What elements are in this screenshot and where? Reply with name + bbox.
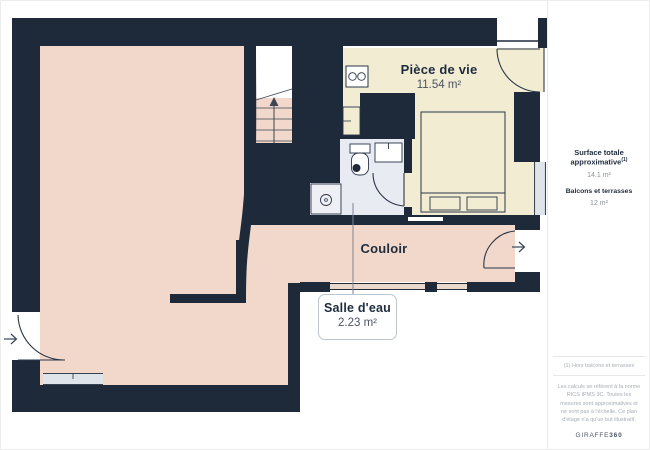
toilet-icon: [350, 144, 370, 175]
wall: [404, 139, 412, 173]
total-surface-value: 14.1 m²: [548, 172, 650, 179]
room-name: Couloir: [339, 241, 429, 256]
window: [330, 283, 425, 290]
wall: [300, 215, 515, 225]
window: [534, 162, 546, 215]
room-label-couloir: Couloir: [339, 241, 429, 256]
washing-machine-icon: [311, 184, 341, 214]
wall: [538, 18, 547, 48]
shower-icon: [375, 143, 402, 162]
balconies-label: Balcons et terrasses: [548, 188, 650, 195]
legal-block: (1) Hors balcons et terrasses Les calcul…: [548, 356, 650, 439]
area-summary: Surface totale approximative(1) 14.1 m² …: [548, 148, 650, 207]
bed-icon: [421, 112, 505, 212]
wall: [514, 92, 540, 162]
wall: [515, 272, 540, 292]
footnote-text: (1) Hors balcons et terrasses: [548, 357, 650, 375]
partition-wall: [170, 294, 246, 303]
total-surface-label: Surface totale approximative(1): [548, 148, 650, 167]
window: [43, 373, 103, 385]
balconies-value: 12 m²: [548, 200, 650, 207]
summary-sidebar: Surface totale approximative(1) 14.1 m² …: [547, 0, 650, 450]
room-area: 11.54 m²: [376, 79, 502, 91]
wall: [467, 282, 515, 292]
wall: [404, 207, 412, 215]
wall: [300, 282, 330, 292]
room-name: Salle d'eau: [319, 301, 396, 315]
room-name: Pièce de vie: [376, 62, 502, 77]
wall: [32, 18, 497, 46]
wall: [12, 385, 300, 412]
wall: [515, 215, 540, 230]
floor-plan-page: Pièce de vie 11.54 m² Couloir Salle d'ea…: [0, 0, 650, 450]
living-room-floor: [40, 46, 247, 385]
room-area: 2.23 m²: [319, 317, 396, 329]
wall: [288, 283, 300, 412]
wall: [360, 93, 415, 139]
kitchen-counter-icon: [343, 107, 360, 135]
stove-icon: [346, 66, 368, 87]
room-label-piece-de-vie: Pièce de vie 11.54 m²: [376, 62, 502, 91]
room-callout-salle-deau: Salle d'eau 2.23 m²: [318, 294, 397, 340]
giraffe360-logo: GIRAFFE360: [548, 432, 650, 439]
wall: [425, 282, 437, 292]
window: [437, 283, 467, 290]
footnote-marker: (1): [621, 157, 627, 163]
stairs-icon: [256, 46, 292, 143]
doorway-threshold: [408, 217, 443, 221]
wall: [12, 18, 40, 312]
entry-arrow-icon: [4, 334, 17, 344]
disclaimer-text: Les calculs se réfèrent à la norme RICS …: [548, 376, 650, 429]
